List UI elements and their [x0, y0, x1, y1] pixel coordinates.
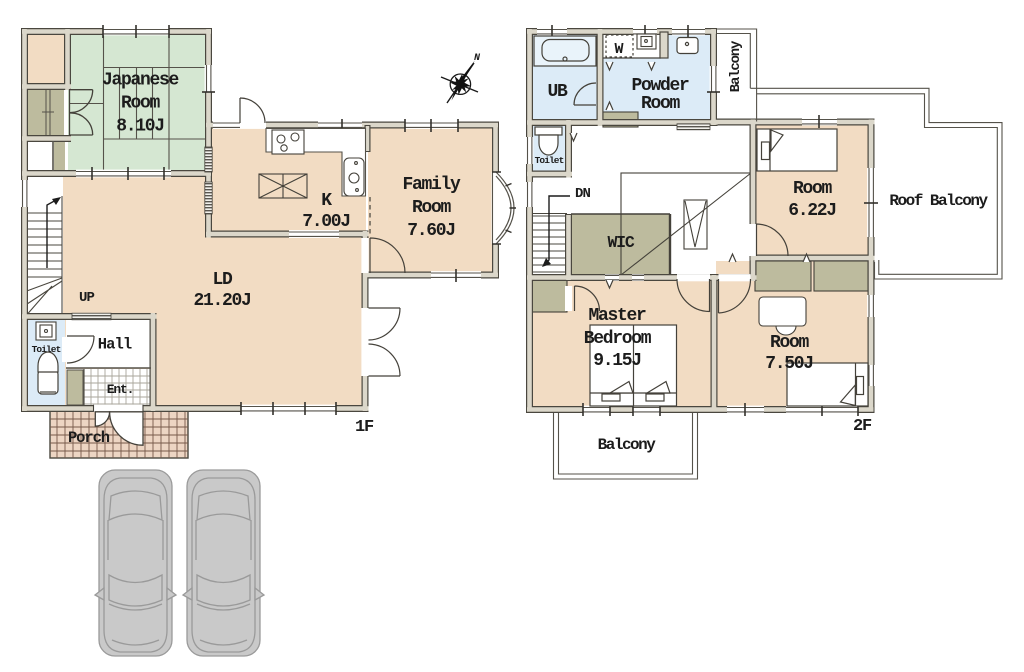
svg-text:W: W: [614, 41, 623, 58]
svg-text:Bedroom: Bedroom: [584, 329, 652, 349]
svg-text:K: K: [321, 191, 332, 211]
svg-text:WIC: WIC: [607, 233, 634, 252]
svg-text:Room: Room: [412, 198, 452, 218]
svg-text:Balcony: Balcony: [598, 436, 657, 454]
svg-text:2F: 2F: [853, 417, 872, 436]
svg-text:7.00J: 7.00J: [302, 212, 350, 232]
svg-text:1F: 1F: [355, 418, 374, 437]
svg-text:7.50J: 7.50J: [765, 354, 813, 374]
svg-text:Japanese: Japanese: [102, 71, 179, 91]
svg-text:DN: DN: [575, 186, 591, 202]
svg-text:Room: Room: [641, 94, 681, 114]
svg-text:8.10J: 8.10J: [116, 117, 164, 137]
svg-text:UB: UB: [547, 82, 568, 102]
svg-text:Roof Balcony: Roof Balcony: [889, 192, 988, 210]
svg-text:21.20J: 21.20J: [193, 291, 250, 311]
svg-text:Toilet: Toilet: [32, 344, 61, 355]
svg-text:N: N: [474, 53, 481, 64]
svg-text:LD: LD: [212, 270, 233, 290]
svg-text:6.22J: 6.22J: [788, 201, 836, 221]
svg-text:Ent.: Ent.: [107, 382, 133, 397]
svg-text:Powder: Powder: [631, 76, 689, 96]
svg-text:Family: Family: [402, 175, 461, 195]
svg-text:7.60J: 7.60J: [407, 221, 455, 241]
svg-text:Room: Room: [770, 333, 810, 353]
svg-text:Balcony: Balcony: [728, 40, 744, 92]
svg-text:UP: UP: [79, 290, 95, 306]
svg-text:Master: Master: [588, 306, 646, 326]
svg-text:Room: Room: [121, 94, 161, 114]
svg-text:Toilet: Toilet: [535, 155, 564, 166]
svg-text:9.15J: 9.15J: [593, 351, 641, 371]
svg-text:Hall: Hall: [98, 336, 132, 354]
svg-text:Room: Room: [793, 179, 833, 199]
svg-text:Porch: Porch: [68, 429, 110, 447]
